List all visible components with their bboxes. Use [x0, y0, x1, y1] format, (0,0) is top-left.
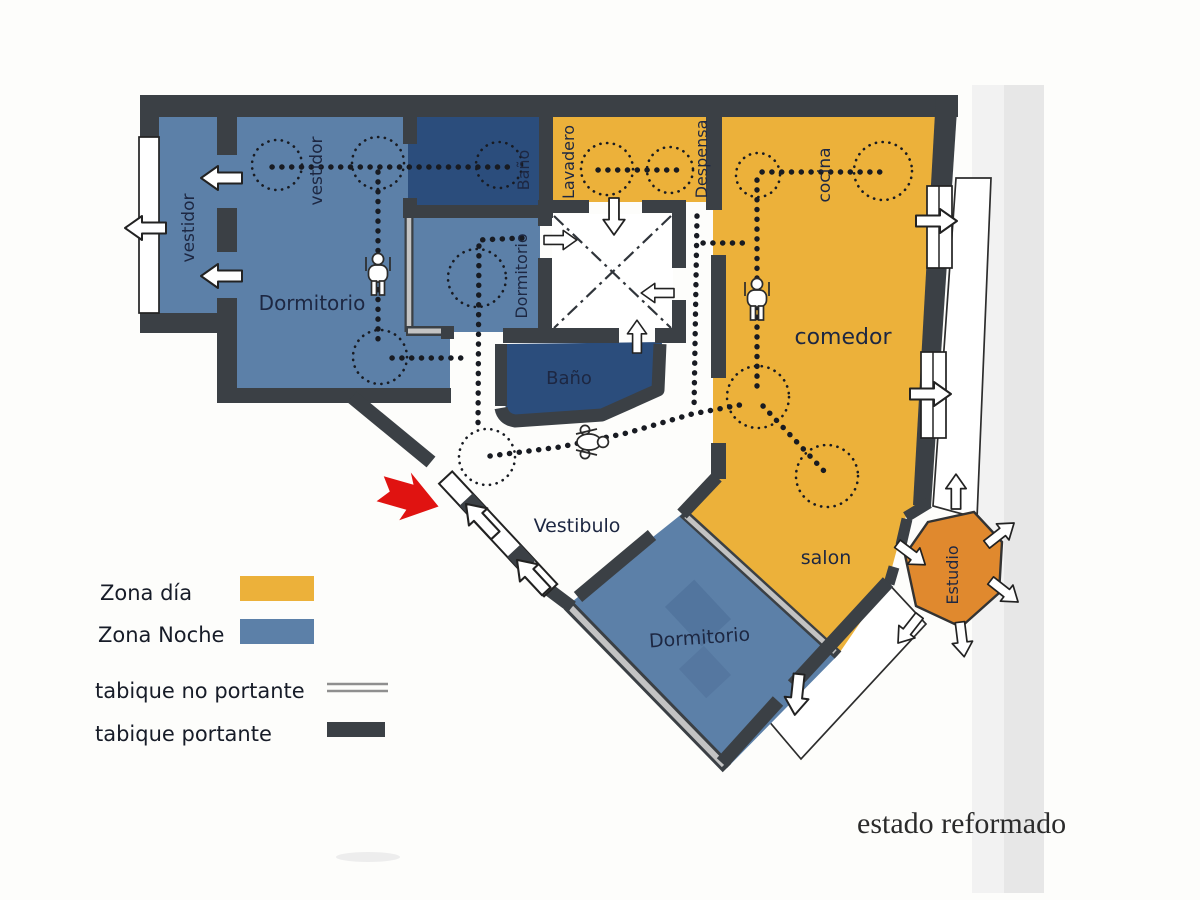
legend-label-tabique-portante: tabique portante [95, 722, 272, 746]
legend-swatch-thick-partition [327, 722, 385, 737]
room-label-dormitorio-mid: Dormitorio [512, 233, 531, 318]
legend-label-zona-dia: Zona día [100, 581, 192, 605]
door-arrow-icon [950, 621, 974, 658]
page-title: estado reformado [857, 807, 1066, 840]
room-label-cocina: cocina [815, 147, 835, 202]
legend-label-tabique-no-portante: tabique no portante [95, 679, 305, 703]
room-label-vestidor-1: vestidor [179, 194, 199, 263]
floor-plan-page: vestidor vestidor Dormitorio Baño Dormit… [0, 0, 1200, 900]
room-label-lavadero: Lavadero [559, 125, 578, 199]
room-label-estudio: Estudio [943, 545, 962, 604]
room-label-bano-mid: Baño [546, 368, 592, 389]
room-label-despensa: Despensa [692, 120, 711, 199]
legend-label-zona-noche: Zona Noche [98, 623, 224, 647]
room-label-salon: salon [801, 547, 852, 569]
wheelchair-person-icon [576, 425, 608, 458]
room-label-vestidor-2: vestidor [307, 137, 327, 206]
room-label-dormitorio-main: Dormitorio [259, 291, 366, 315]
legend-swatch-zona-noche [240, 619, 314, 644]
entrance-arrow-icon [373, 466, 445, 530]
legend: Zona día Zona Noche tabique no portante … [95, 576, 388, 746]
legend-swatch-thin-partition [327, 684, 388, 691]
legend-swatch-zona-dia [240, 576, 314, 601]
room-label-bano-top: Baño [514, 150, 533, 191]
floor-plan-drawing: vestidor vestidor Dormitorio Baño Dormit… [0, 0, 1200, 900]
room-label-vestibulo: Vestibulo [534, 515, 621, 537]
room-label-comedor: comedor [795, 325, 893, 350]
